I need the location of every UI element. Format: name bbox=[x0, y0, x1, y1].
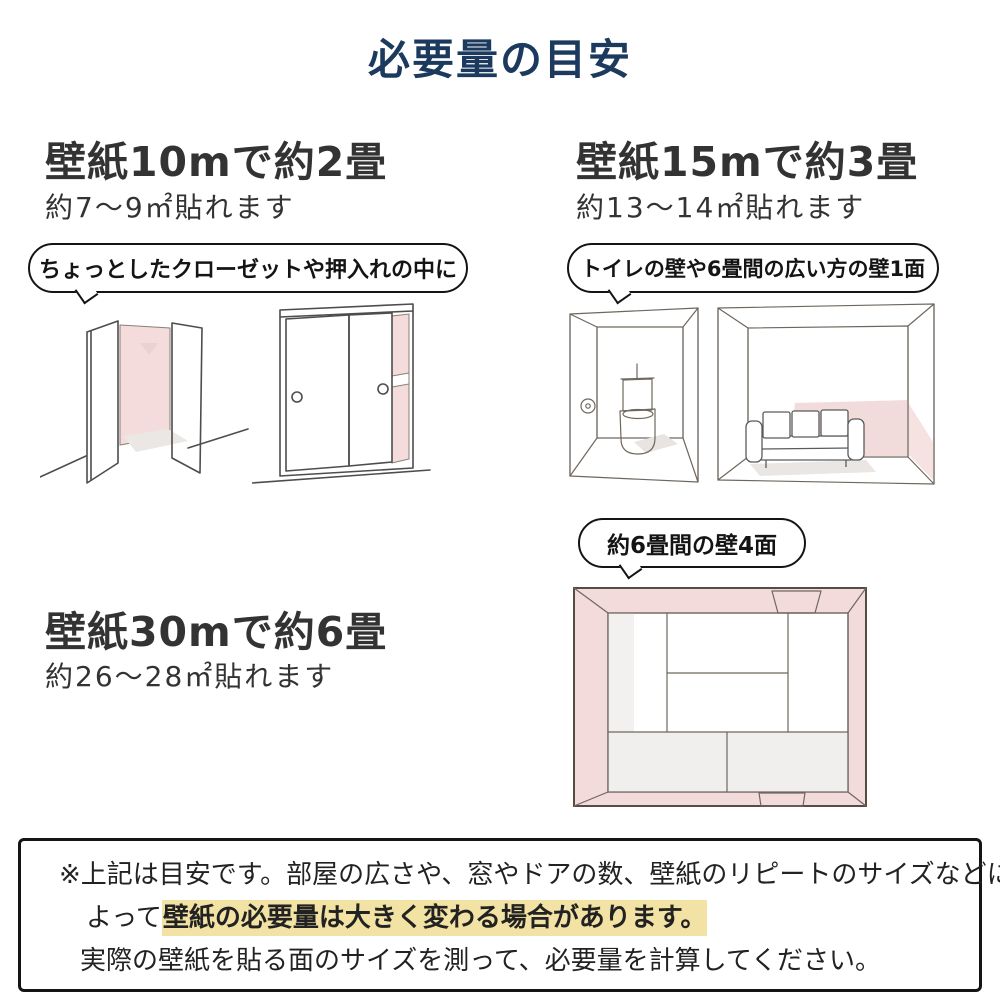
section-15m-subtext: 約13〜14㎡貼れます bbox=[576, 186, 865, 226]
note-line-3: 実際の壁紙を貼る面のサイズを測って、必要量を計算してください。 bbox=[80, 940, 961, 983]
section-15m-callout-text: トイレの壁や6畳間の広い方の壁1面 bbox=[581, 253, 925, 283]
section-30m-subtext: 約26〜28㎡貼れます bbox=[45, 655, 334, 695]
section-10m-heading: 壁紙10mで約2畳 bbox=[45, 128, 387, 188]
open-closet-illustration bbox=[40, 305, 250, 490]
section-10m-callout-bubble: ちょっとしたクローゼットや押入れの中に bbox=[28, 243, 468, 293]
section-15m-callout-bubble: トイレの壁や6畳間の広い方の壁1面 bbox=[567, 243, 939, 293]
tatami-room-illustration bbox=[572, 586, 868, 808]
note-box: ※上記は目安です。部屋の広さや、窓やドアの数、壁紙のリピートのサイズなどに よっ… bbox=[18, 838, 982, 992]
note-line-2-highlight: 壁紙の必要量は大きく変わる場合があります。 bbox=[162, 900, 707, 936]
note-line-2: よって壁紙の必要量は大きく変わる場合があります。 bbox=[86, 897, 961, 940]
section-15m-heading: 壁紙15mで約3畳 bbox=[576, 128, 918, 188]
sofa-room-illustration bbox=[716, 302, 936, 487]
note-line-1: ※上記は目安です。部屋の広さや、窓やドアの数、壁紙のリピートのサイズなどに bbox=[59, 854, 961, 897]
sliding-closet-illustration bbox=[252, 300, 432, 490]
section-30m-heading: 壁紙30mで約6畳 bbox=[45, 598, 387, 658]
section-10m-subtext: 約7〜9㎡貼れます bbox=[45, 186, 295, 226]
note-line-2-prefix: よって bbox=[86, 903, 162, 933]
toilet-room-illustration bbox=[568, 306, 700, 484]
sofa-icon bbox=[746, 410, 864, 468]
section-30m-callout-bubble: 約6畳間の壁4面 bbox=[578, 518, 806, 568]
page-title: 必要量の目安 bbox=[0, 26, 1000, 87]
section-10m-callout-text: ちょっとしたクローゼットや押入れの中に bbox=[39, 252, 457, 284]
bubble-tail bbox=[608, 280, 632, 304]
wallpaper-quantity-guide: 必要量の目安 壁紙10mで約2畳 約7〜9㎡貼れます ちょっとしたクローゼットや… bbox=[0, 0, 1000, 1000]
